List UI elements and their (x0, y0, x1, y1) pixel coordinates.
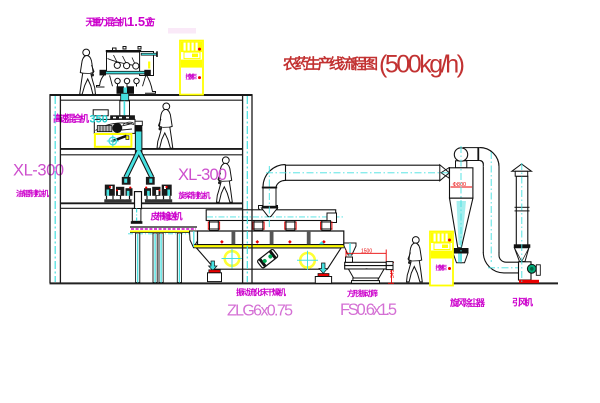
svg-text:FS0.6x1.5: FS0.6x1.5 (340, 301, 397, 319)
svg-text:Φ800: Φ800 (453, 182, 467, 188)
svg-text:旋桨制粒机: 旋桨制粒机 (178, 190, 211, 200)
svg-text:XL-300: XL-300 (178, 166, 227, 184)
svg-text:高速混合机: 高速混合机 (53, 113, 89, 125)
svg-text:ZLG6x0.75: ZLG6x0.75 (227, 303, 293, 320)
svg-text:振动流化床干燥机: 振动流化床干燥机 (236, 287, 286, 297)
svg-text:无重力混合机: 无重力混合机 (85, 17, 128, 29)
svg-text:1500: 1500 (361, 249, 372, 255)
svg-text:(500kg/h): (500kg/h) (379, 51, 465, 79)
svg-text:引风机: 引风机 (512, 296, 533, 307)
svg-text:1.5: 1.5 (127, 14, 145, 29)
svg-text:350: 350 (90, 113, 108, 125)
svg-text:农药生产线流程图: 农药生产线流程图 (282, 55, 378, 73)
svg-text:皮带输送机: 皮带输送机 (150, 211, 183, 222)
svg-text:345: 345 (390, 269, 396, 278)
svg-text:旋风除尘器: 旋风除尘器 (449, 297, 486, 308)
svg-text:立方: 立方 (145, 17, 156, 29)
svg-text:方形振动筛: 方形振动筛 (347, 288, 378, 298)
svg-text:XL-300: XL-300 (13, 162, 64, 180)
svg-text:油辊制粒机: 油辊制粒机 (16, 188, 49, 198)
